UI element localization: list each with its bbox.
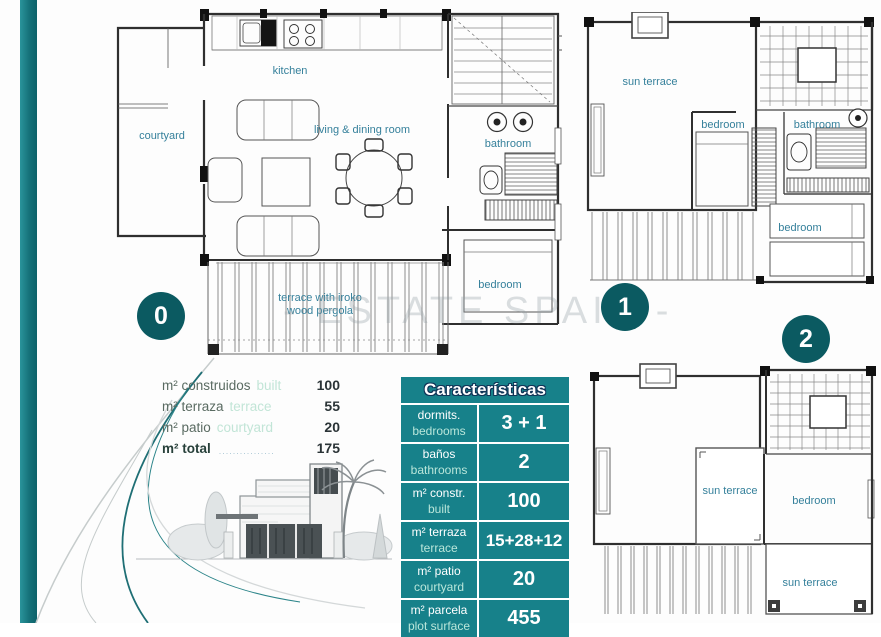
row-label: dormits. bedrooms <box>401 405 477 442</box>
row-label: m² terraza terrace <box>401 522 477 559</box>
row-label-es: baños <box>423 447 456 463</box>
summary-label-es: m² construidos <box>162 378 251 393</box>
summary-label-en: built <box>257 378 282 393</box>
row-value: 100 <box>479 483 569 520</box>
summary-value: 100 <box>317 377 340 393</box>
table-title: Características <box>401 377 569 403</box>
row-label-es: dormits. <box>418 408 461 424</box>
row-value: 15+28+12 <box>479 522 569 559</box>
summary-value: 55 <box>324 398 340 414</box>
brochure-page: kitchen courtyard living & dining room b… <box>0 0 881 623</box>
row-label-es: m² constr. <box>413 486 466 502</box>
row-label: baños bathrooms <box>401 444 477 481</box>
summary-label-en: courtyard <box>217 420 273 435</box>
floor-badge-0: 0 <box>137 292 185 340</box>
row-value: 3 + 1 <box>479 405 569 442</box>
table-row-plot: m² parcela plot surface 455 <box>401 600 569 637</box>
summary-row-terrace: m² terraza terrace 55 <box>162 398 340 419</box>
row-label: m² parcela plot surface <box>401 600 477 637</box>
table-row-courtyard: m² patio courtyard 20 <box>401 561 569 598</box>
row-label-en: built <box>428 502 450 518</box>
row-label-en: courtyard <box>414 580 464 596</box>
summary-row-courtyard: m² patio courtyard 20 <box>162 419 340 440</box>
area-summary: m² construidos built 100 m² terraza terr… <box>162 377 340 461</box>
floor-badge-2: 2 <box>782 315 830 363</box>
summary-value: 20 <box>324 419 340 435</box>
room-label-bedroom: bedroom <box>701 119 744 131</box>
room-label-courtyard: courtyard <box>139 130 185 142</box>
floor-plan-1-drawing <box>584 12 876 294</box>
row-value: 2 <box>479 444 569 481</box>
table-row-built: m² constr. built 100 <box>401 483 569 520</box>
summary-row-total: m² total ................ 175 <box>162 440 340 461</box>
row-label-en: plot surface <box>408 619 470 635</box>
row-label: m² patio courtyard <box>401 561 477 598</box>
room-label-bedroom-2: bedroom <box>778 222 821 234</box>
summary-label-es: m² terraza <box>162 399 224 414</box>
row-label-es: m² parcela <box>411 603 468 619</box>
house-elevation-sketch <box>128 458 400 580</box>
row-label: m² constr. built <box>401 483 477 520</box>
room-label-bathroom: bathroom <box>794 119 840 131</box>
row-value: 20 <box>479 561 569 598</box>
floor-plan-2: sun terrace bedroom sun terrace <box>588 362 876 620</box>
characteristics-table: Características dormits. bedrooms 3 + 1 … <box>401 377 569 637</box>
table-row-terrace: m² terraza terrace 15+28+12 <box>401 522 569 559</box>
summary-total-label: m² total <box>162 441 211 456</box>
table-row-bedrooms: dormits. bedrooms 3 + 1 <box>401 405 569 442</box>
room-label-kitchen: kitchen <box>273 65 308 77</box>
room-label-bathroom: bathroom <box>485 138 531 150</box>
summary-row-built: m² construidos built 100 <box>162 377 340 398</box>
summary-total-value: 175 <box>317 440 340 456</box>
summary-label-en: terrace <box>230 399 272 414</box>
table-row-bathrooms: baños bathrooms 2 <box>401 444 569 481</box>
row-label-en: bathrooms <box>411 463 468 479</box>
row-label-es: m² terraza <box>412 525 467 541</box>
room-label-bedroom: bedroom <box>792 495 835 507</box>
summary-label-es: m² patio <box>162 420 211 435</box>
row-label-es: m² patio <box>417 564 460 580</box>
floor-badge-1: 1 <box>601 283 649 331</box>
row-value: 455 <box>479 600 569 637</box>
room-label-living: living & dining room <box>314 124 410 136</box>
row-label-en: terrace <box>420 541 457 557</box>
teal-accent-bar <box>20 0 37 623</box>
dotted-leader: ................ <box>219 446 275 456</box>
room-label-sun-terrace-2: sun terrace <box>782 577 837 589</box>
room-label-sun-terrace: sun terrace <box>702 485 757 497</box>
floor-plan-1: sun terrace bedroom bathroom bedroom <box>584 12 876 294</box>
room-label-sun-terrace: sun terrace <box>622 76 677 88</box>
row-label-en: bedrooms <box>412 424 465 440</box>
